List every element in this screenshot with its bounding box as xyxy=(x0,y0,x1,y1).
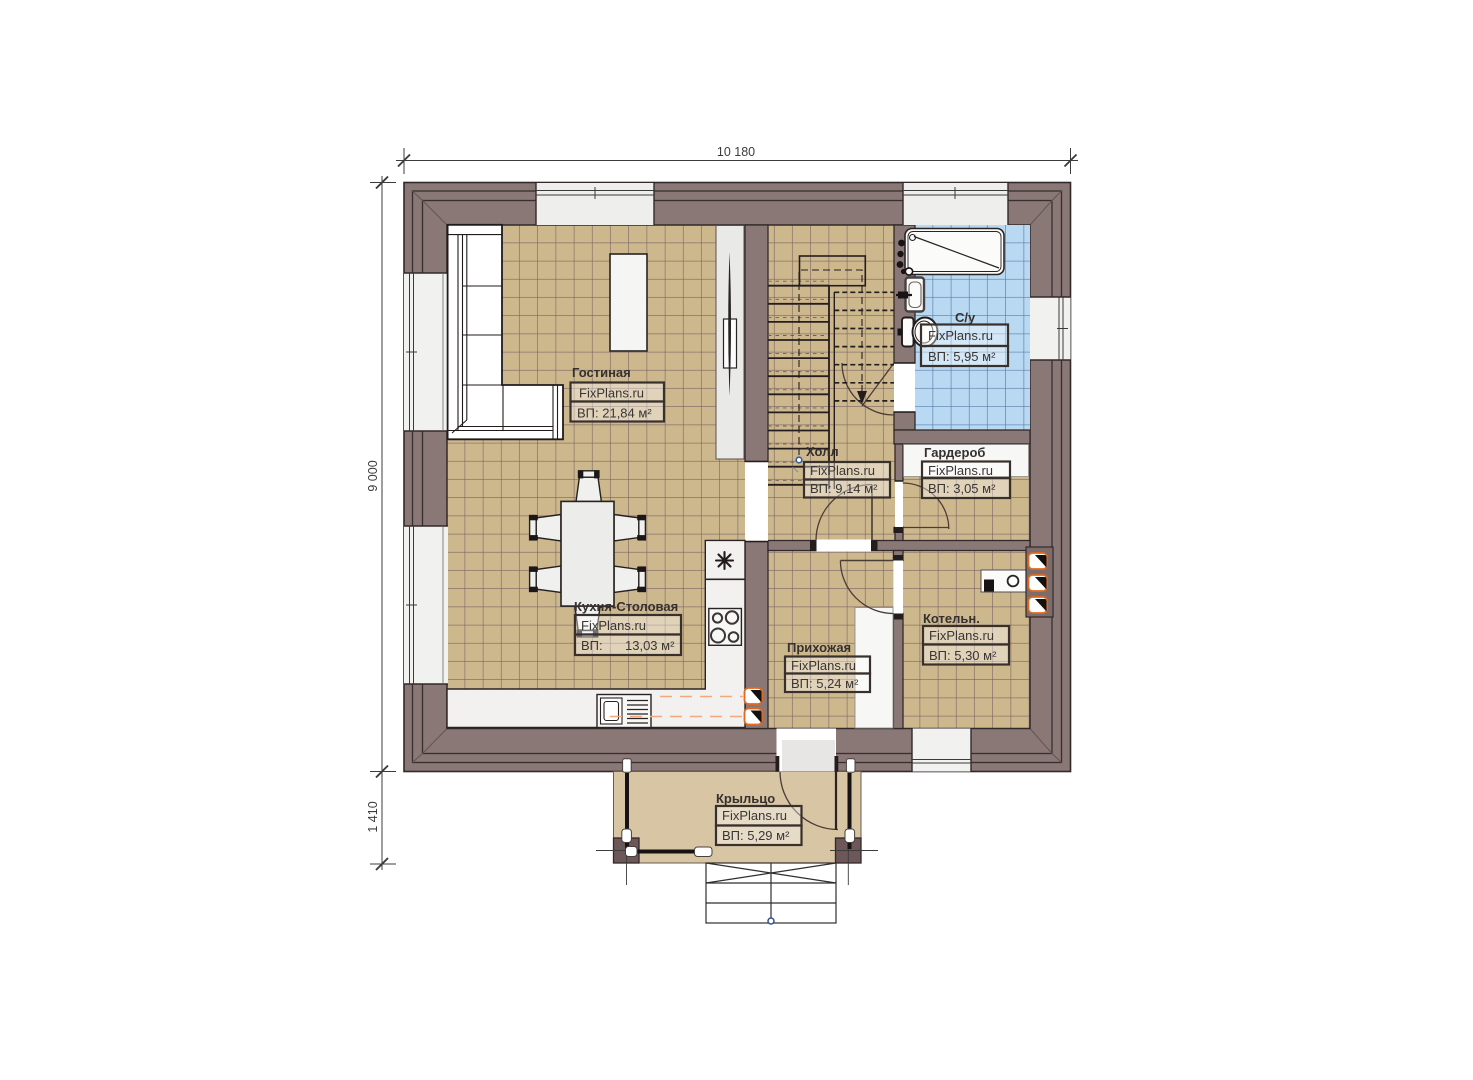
svg-text:С/у: С/у xyxy=(955,310,976,325)
svg-text:Котельн.: Котельн. xyxy=(923,611,980,626)
svg-text:Гардероб: Гардероб xyxy=(924,445,985,460)
svg-text:9 000: 9 000 xyxy=(366,460,380,491)
svg-text:ВП: 5,24 м²: ВП: 5,24 м² xyxy=(791,676,859,691)
svg-text:1 410: 1 410 xyxy=(366,801,380,832)
svg-text:ВП: 9,14 м²: ВП: 9,14 м² xyxy=(810,481,878,496)
svg-text:FixPlans.ru: FixPlans.ru xyxy=(810,463,875,478)
svg-text:ВП: 5,95 м²: ВП: 5,95 м² xyxy=(928,349,996,364)
svg-text:Прихожая: Прихожая xyxy=(787,640,851,655)
svg-text:ВП: 3,05 м²: ВП: 3,05 м² xyxy=(928,481,996,496)
svg-text:FixPlans.ru: FixPlans.ru xyxy=(928,463,993,478)
svg-text:10 180: 10 180 xyxy=(717,145,755,159)
svg-text:13,03 м²: 13,03 м² xyxy=(625,638,675,653)
svg-text:FixPlans.ru: FixPlans.ru xyxy=(722,808,787,823)
svg-text:FixPlans.ru: FixPlans.ru xyxy=(579,386,644,401)
svg-text:FixPlans.ru: FixPlans.ru xyxy=(581,618,646,633)
svg-text:ВП: 5,30 м²: ВП: 5,30 м² xyxy=(929,648,997,663)
svg-text:FixPlans.ru: FixPlans.ru xyxy=(928,328,993,343)
svg-text:Гостиная: Гостиная xyxy=(572,365,631,380)
svg-text:Кухня-Столовая: Кухня-Столовая xyxy=(574,599,678,614)
svg-text:ВП: 5,29 м²: ВП: 5,29 м² xyxy=(722,828,790,843)
svg-text:ВП: 21,84 м²: ВП: 21,84 м² xyxy=(577,406,652,421)
svg-text:Крыльцо: Крыльцо xyxy=(716,791,775,806)
svg-text:FixPlans.ru: FixPlans.ru xyxy=(929,628,994,643)
svg-text:Холл: Холл xyxy=(806,444,839,459)
svg-text:FixPlans.ru: FixPlans.ru xyxy=(791,658,856,673)
svg-text:ВП:: ВП: xyxy=(581,638,603,653)
